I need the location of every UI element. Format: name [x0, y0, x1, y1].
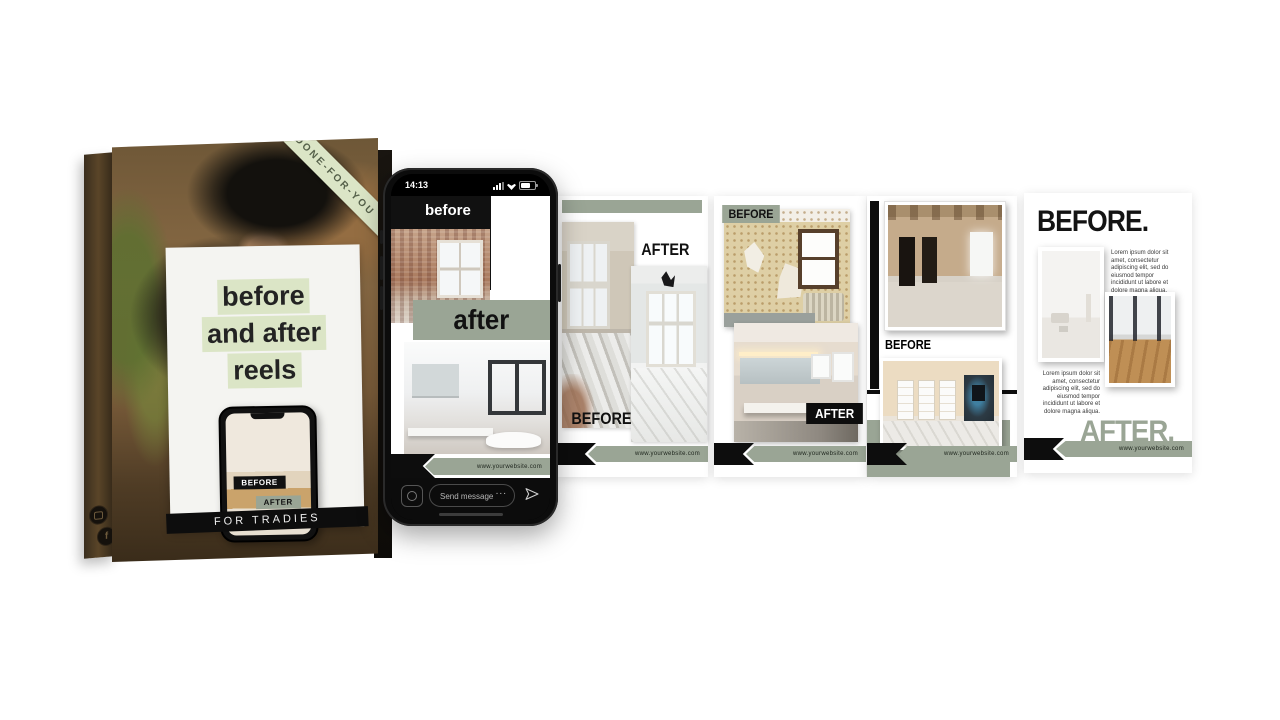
product-box: f DONE-FOR-YOU before and after reels BE… [84, 138, 390, 568]
before-photo-frame [884, 201, 1006, 331]
box-title: before and after reels [166, 276, 362, 391]
box-title-line-1: before [217, 278, 310, 315]
after-label: AFTER [806, 403, 863, 424]
send-message-input[interactable] [438, 485, 498, 508]
phone-volume-down-button [380, 286, 383, 310]
website-arrow-bar: www.yourwebsite.com [588, 446, 708, 462]
before-label: BEFORE [722, 205, 780, 223]
website-arrow-bar: www.yourwebsite.com [1056, 441, 1192, 457]
website-arrow-bar: www.yourwebsite.com [746, 446, 866, 462]
after-label: after [454, 304, 510, 336]
body-text: Lorem ipsum dolor sit amet, consectetur … [1111, 250, 1173, 295]
box-spine: f [84, 152, 116, 559]
more-options-icon[interactable]: ... [496, 486, 507, 497]
website-bar: www.yourwebsite.com [556, 443, 708, 465]
before-label: BEFORE [885, 337, 931, 352]
phone-mockup: 14:13 before after [383, 168, 558, 526]
send-message-pill[interactable]: ... [429, 484, 515, 507]
marketing-banner: f DONE-FOR-YOU before and after reels BE… [0, 0, 1280, 720]
black-accent-bar [870, 201, 879, 389]
before-photo-frame [1038, 247, 1104, 362]
website-url: www.yourwebsite.com [944, 451, 1009, 457]
before-photo [1042, 251, 1100, 358]
battery-icon [519, 181, 536, 190]
website-bar: www.yourwebsite.com [1024, 438, 1192, 460]
instagram-icon [89, 505, 108, 526]
signal-icon [493, 182, 504, 190]
website-bar: www.yourwebsite.com [867, 443, 1017, 465]
phone-silent-switch [380, 230, 383, 244]
website-arrow-bar: www.yourwebsite.com [899, 446, 1017, 462]
phone-power-button [558, 264, 561, 302]
body-text-2: Lorem ipsum dolor sit amet, consectetur … [1038, 371, 1100, 416]
box-title-card: before and after reels BEFORE AFTER FOR … [166, 244, 365, 529]
website-url: www.yourwebsite.com [793, 451, 858, 457]
phone-screen: 14:13 before after [391, 174, 550, 520]
before-photo [724, 209, 850, 327]
before-label: BEFORE [571, 409, 631, 429]
top-accent-bar [562, 200, 702, 213]
phone-status-bar: 14:13 [391, 174, 550, 196]
after-photo [404, 342, 550, 454]
website-url: www.yourwebsite.com [635, 451, 700, 457]
send-icon[interactable] [524, 486, 540, 502]
website-bar: www.yourwebsite.com [391, 454, 550, 478]
template-card-4: BEFORE. Lorem ipsum dolor sit amet, cons… [1024, 193, 1192, 473]
status-icons [493, 180, 536, 190]
after-photo [1109, 296, 1171, 383]
wifi-icon [507, 183, 516, 190]
box-title-line-2: and after [202, 315, 327, 352]
before-photo [562, 222, 634, 428]
after-banner: after [413, 300, 550, 340]
after-label: AFTER [642, 240, 690, 260]
after-photo [734, 323, 858, 442]
website-bar: www.yourwebsite.com [714, 443, 866, 465]
website-url: www.yourwebsite.com [1119, 446, 1184, 452]
reel-frame: before after www.yourwebsite.com [391, 196, 550, 478]
status-time: 14:13 [405, 180, 428, 190]
after-photo [631, 266, 707, 442]
mini-before-label: BEFORE [233, 476, 286, 490]
home-indicator[interactable] [439, 513, 503, 516]
template-card-1: AFTER BEFORE www.yourwebsite.com [556, 196, 708, 477]
phone-message-bar: ... [391, 478, 550, 520]
before-label: before [425, 202, 471, 219]
phone-volume-up-button [380, 256, 383, 280]
after-photo-frame [1105, 292, 1175, 387]
before-heading: BEFORE. [1037, 205, 1148, 239]
mini-phone-notch [250, 413, 284, 420]
mini-after-label: AFTER [255, 495, 300, 509]
box-front-cover: DONE-FOR-YOU before and after reels BEFO… [112, 138, 378, 562]
template-card-2: BEFORE AFTER www.yourwebsite.com [714, 196, 866, 477]
camera-icon[interactable] [401, 485, 423, 507]
before-photo [888, 205, 1002, 327]
after-photo-frame [880, 358, 1002, 450]
website-url: www.yourwebsite.com [477, 464, 542, 470]
website-arrow-bar: www.yourwebsite.com [425, 458, 550, 475]
after-photo [883, 361, 999, 447]
box-title-line-3: reels [228, 353, 302, 389]
template-card-3: BEFORE AFTER www.yourwebsite.com [867, 196, 1017, 477]
